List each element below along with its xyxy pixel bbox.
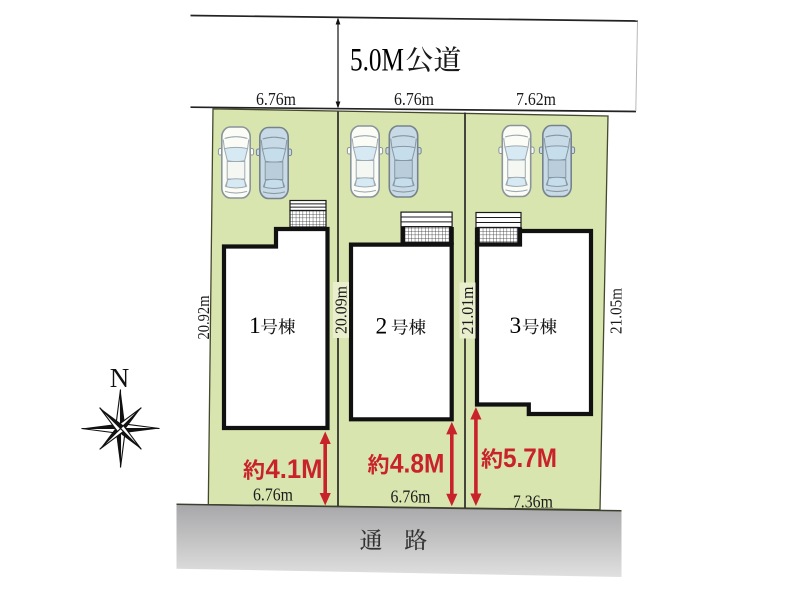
svg-text:4.8M: 4.8M [390,449,445,479]
svg-text:6.76m: 6.76m [391,487,431,507]
svg-text:4.1M: 4.1M [266,454,323,484]
svg-text:6.76m: 6.76m [253,484,293,504]
svg-text:7.36m: 7.36m [513,491,553,511]
svg-text:5.7M: 5.7M [503,443,557,473]
svg-text:2: 2 [376,314,388,340]
svg-text:20.09m: 20.09m [332,286,351,334]
svg-text:21.05m: 21.05m [607,288,626,334]
svg-text:5.0M: 5.0M [350,43,404,79]
svg-text:N: N [110,363,130,393]
svg-text:6.76m: 6.76m [256,89,296,109]
svg-text:20.92m: 20.92m [194,295,213,339]
svg-text:3: 3 [510,313,522,339]
svg-text:6.76m: 6.76m [394,89,434,109]
svg-text:21.01m: 21.01m [458,286,477,334]
svg-text:1: 1 [249,313,261,339]
svg-text:7.62m: 7.62m [516,89,556,109]
